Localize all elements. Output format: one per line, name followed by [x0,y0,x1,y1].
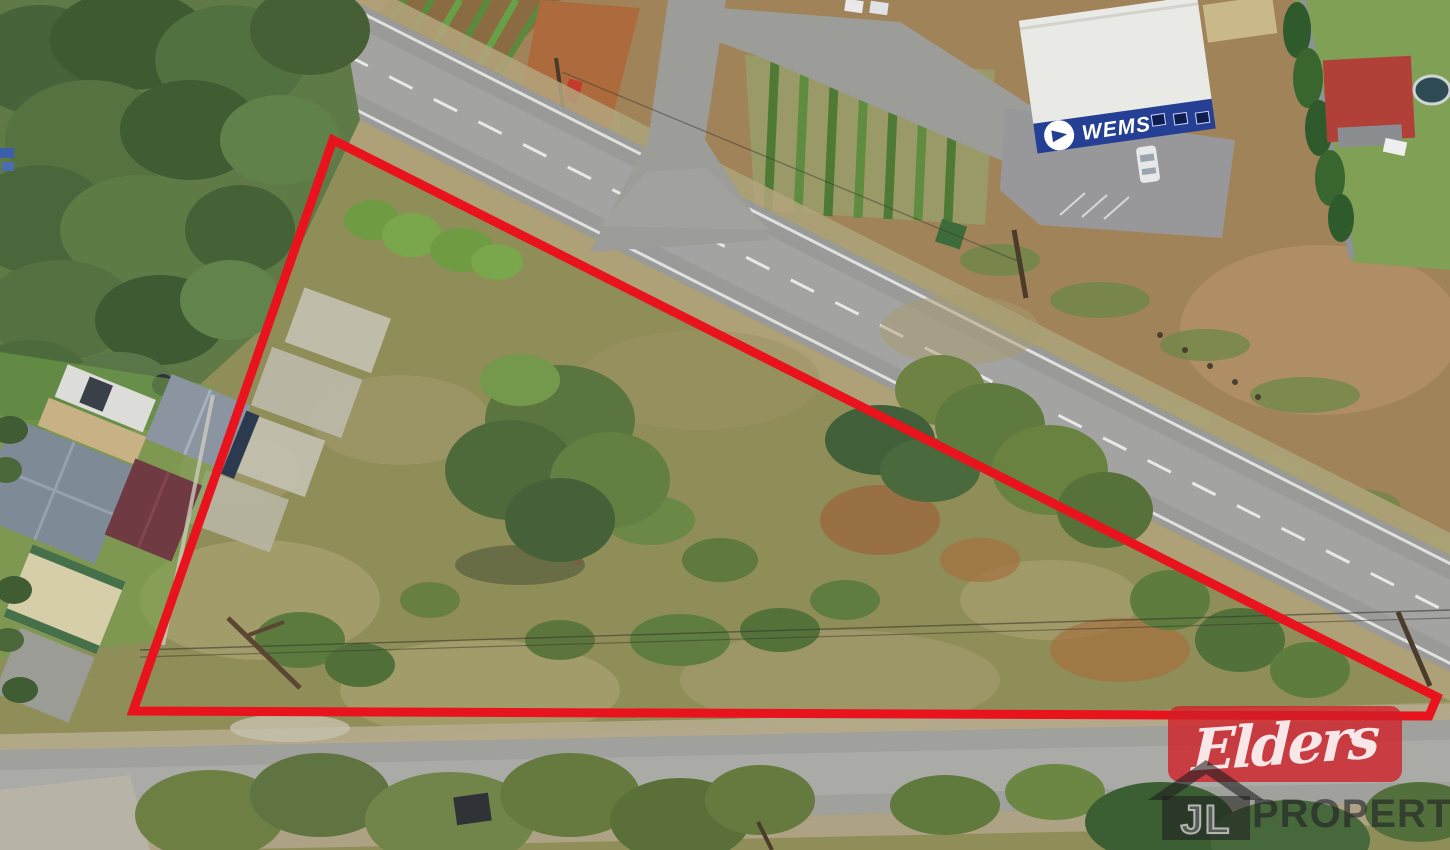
aerial-photo-stage: WEMS [0,0,1450,850]
parked-car [869,1,888,15]
trailer [453,793,492,826]
jl-property-text: PROPERTY [1252,792,1450,837]
wems-site: WEMS [1000,0,1235,238]
pool [1414,76,1450,104]
jl-initials: JL [1176,798,1236,843]
jl-property-logo: JL PROPERTY [1148,760,1450,850]
